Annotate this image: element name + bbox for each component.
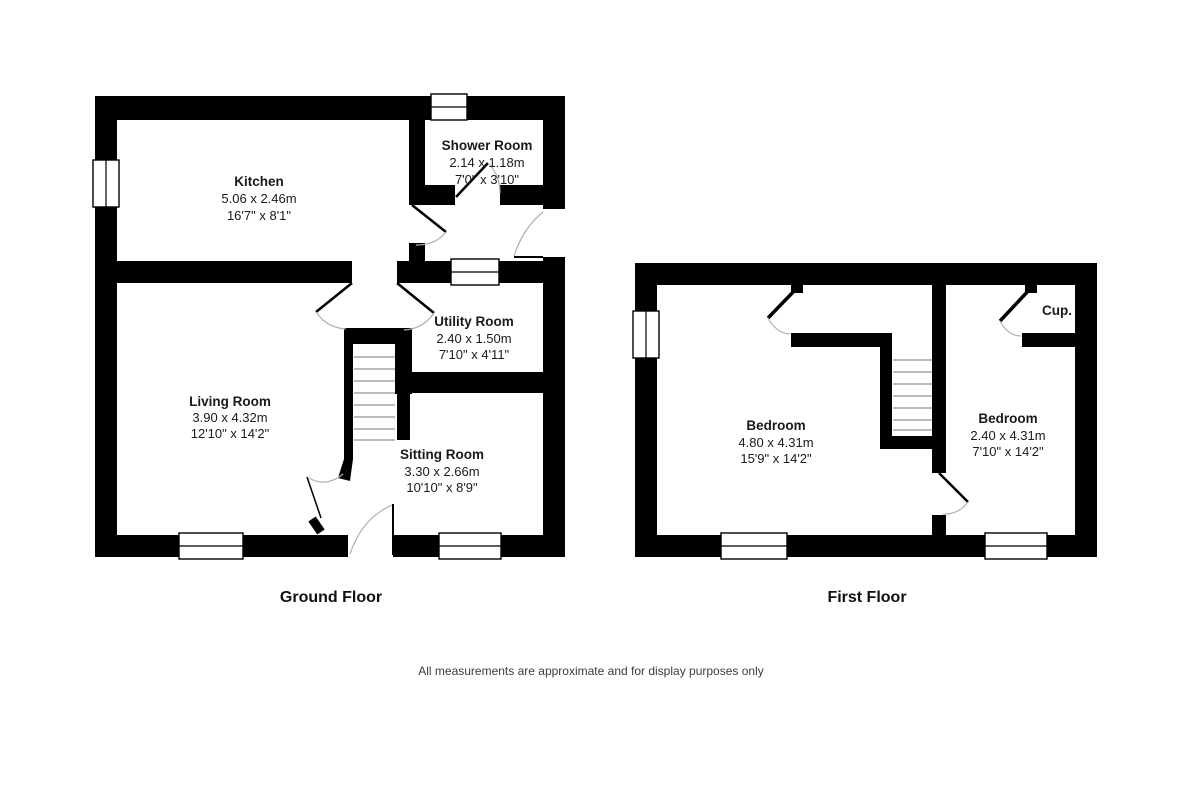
disclaimer-text: All measurements are approximate and for… — [418, 664, 764, 678]
ground-floor-title: Ground Floor — [280, 589, 382, 606]
room-imperial: 15'9" x 14'2" — [740, 451, 812, 466]
room-metric: 2.40 x 1.50m — [436, 331, 511, 346]
room-imperial: 10'10" x 8'9" — [406, 480, 478, 495]
room-metric: 5.06 x 2.46m — [221, 191, 296, 206]
room-label-sitting-room: Sitting Room 3.30 x 2.66m 10'10" x 8'9" — [400, 447, 484, 495]
wall-stairwell-left — [880, 347, 892, 448]
wall-shower-bottom-right — [500, 185, 543, 205]
floorplan-canvas: Kitchen 5.06 x 2.46m 16'7" x 8'1" Shower… — [0, 0, 1200, 790]
first-floor-title: First Floor — [827, 589, 906, 606]
window-living-bottom — [179, 533, 243, 559]
wall-stairwell-bottom — [880, 436, 946, 449]
window-sitting-bottom — [439, 533, 501, 559]
room-imperial: 7'10" x 4'11" — [439, 347, 510, 362]
wall-landing — [791, 333, 892, 347]
wall-exterior-right-upper — [543, 96, 565, 209]
room-metric: 2.40 x 4.31m — [970, 428, 1045, 443]
wall-shower-bottom-left — [409, 185, 455, 205]
window-bedroom1-bottom — [721, 533, 787, 559]
room-name: Bedroom — [978, 411, 1037, 426]
cupboard-label: Cup. — [1042, 303, 1072, 318]
window-shower-top — [431, 94, 467, 120]
room-name: Sitting Room — [400, 447, 484, 462]
room-imperial: 7'10" x 14'2" — [972, 444, 1044, 459]
window-utility-top — [451, 259, 499, 285]
room-name: Kitchen — [234, 174, 284, 189]
wall-stairwell-top — [344, 328, 397, 344]
wall-exterior-top — [635, 263, 1097, 285]
floorplan-page: Kitchen 5.06 x 2.46m 16'7" x 8'1" Shower… — [0, 0, 1200, 790]
room-label-bedroom-2: Bedroom 2.40 x 4.31m 7'10" x 14'2" — [970, 411, 1045, 459]
window-bedroom2-bottom — [985, 533, 1047, 559]
wall-exterior-left — [635, 263, 657, 557]
window-bedroom1-left — [633, 311, 659, 358]
room-metric: 3.30 x 2.66m — [404, 464, 479, 479]
room-label-utility-room: Utility Room 2.40 x 1.50m 7'10" x 4'11" — [434, 314, 514, 362]
room-imperial: 12'10" x 14'2" — [191, 426, 270, 441]
window-kitchen-left — [93, 160, 119, 207]
wall-exterior-right-lower — [543, 257, 565, 557]
room-imperial: 7'0" x 3'10" — [455, 172, 519, 187]
wall-bedroom-divider-stub — [932, 515, 946, 535]
room-metric: 3.90 x 4.32m — [192, 410, 267, 425]
wall-exterior-top — [95, 96, 565, 120]
room-label-living-room: Living Room 3.90 x 4.32m 12'10" x 14'2" — [189, 394, 271, 441]
room-metric: 2.14 x 1.18m — [449, 155, 524, 170]
room-name: Utility Room — [434, 314, 514, 329]
room-name: Bedroom — [746, 418, 805, 433]
room-label-bedroom-1: Bedroom 4.80 x 4.31m 15'9" x 14'2" — [738, 418, 813, 466]
wall-kitchen-door-stub — [409, 243, 425, 263]
wall-exterior-right — [1075, 263, 1097, 557]
room-name: Shower Room — [442, 138, 533, 153]
wall-cupboard-bottom — [1022, 333, 1077, 347]
room-imperial: 16'7" x 8'1" — [227, 208, 291, 223]
room-metric: 4.80 x 4.31m — [738, 435, 813, 450]
wall-kitchen-living — [95, 261, 352, 283]
wall-stairwell-left — [344, 344, 353, 459]
room-label-shower-room: Shower Room 2.14 x 1.18m 7'0" x 3'10" — [442, 138, 533, 187]
wall-sitting-left — [397, 393, 410, 440]
room-name: Living Room — [189, 394, 271, 409]
wall-utility-bottom — [395, 372, 545, 393]
